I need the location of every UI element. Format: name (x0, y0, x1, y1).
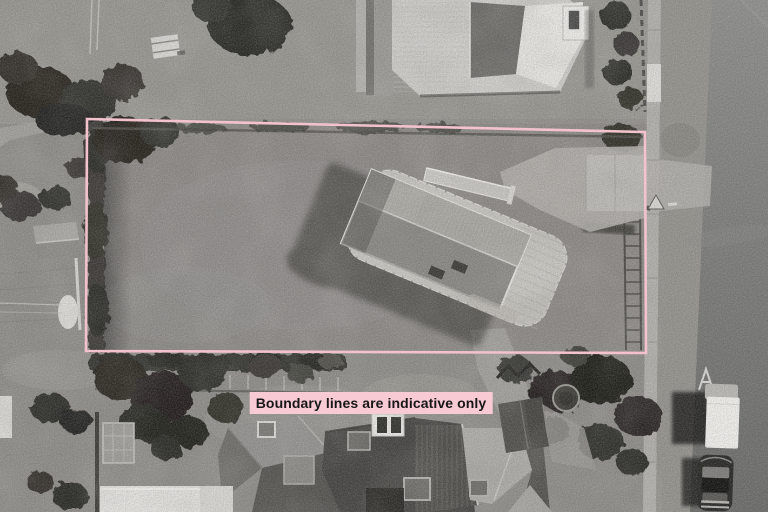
film-grain (0, 0, 768, 512)
aerial-photo: Boundary lines are indicative only (0, 0, 768, 512)
boundary-disclaimer-label: Boundary lines are indicative only (250, 392, 493, 414)
aerial-photo-scene (0, 0, 768, 512)
